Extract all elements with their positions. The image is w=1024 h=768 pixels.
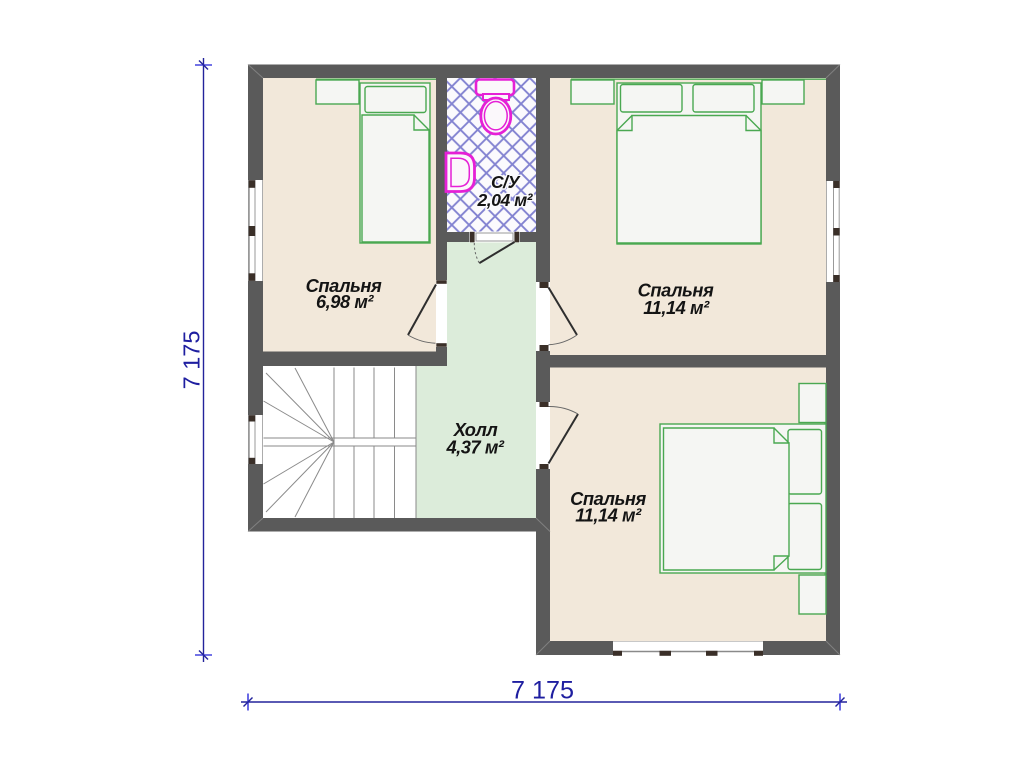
- svg-text:4,37 м²: 4,37 м²: [445, 437, 504, 458]
- svg-text:2,04 м²: 2,04 м²: [477, 190, 534, 210]
- svg-text:7 175: 7 175: [511, 677, 574, 705]
- svg-text:11,14 м²: 11,14 м²: [575, 505, 642, 526]
- svg-text:7 175: 7 175: [179, 331, 205, 390]
- svg-text:11,14 м²: 11,14 м²: [643, 297, 710, 318]
- svg-text:6,98 м²: 6,98 м²: [316, 291, 374, 312]
